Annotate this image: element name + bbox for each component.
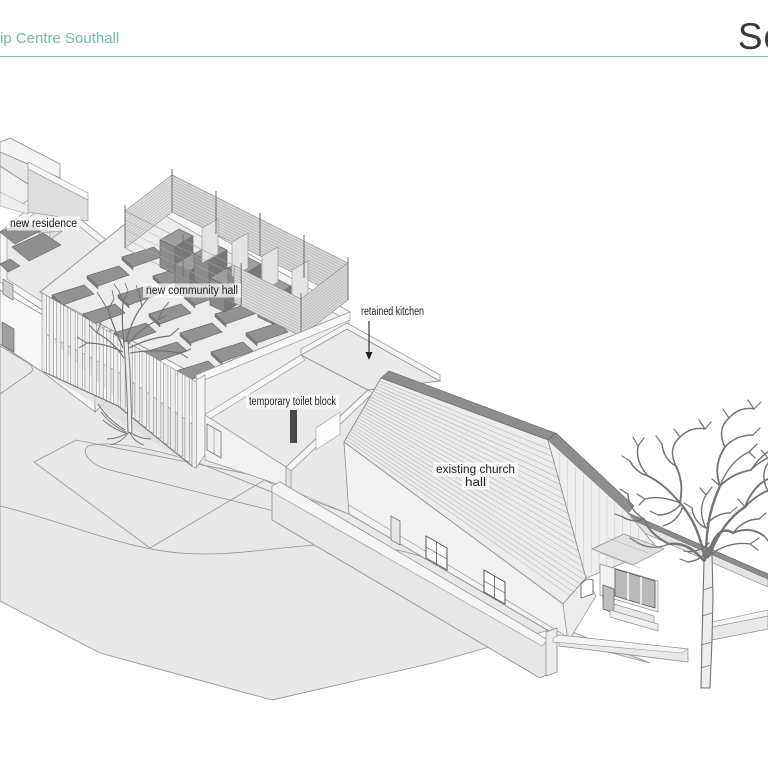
svg-text:hall: hall <box>465 477 486 489</box>
svg-text:existing church: existing church <box>436 464 515 476</box>
svg-text:new residence: new residence <box>10 218 77 230</box>
svg-text:new community hall: new community hall <box>146 285 238 297</box>
svg-text:retained kitchen: retained kitchen <box>361 306 424 318</box>
svg-text:temporary toilet block: temporary toilet block <box>249 396 336 408</box>
